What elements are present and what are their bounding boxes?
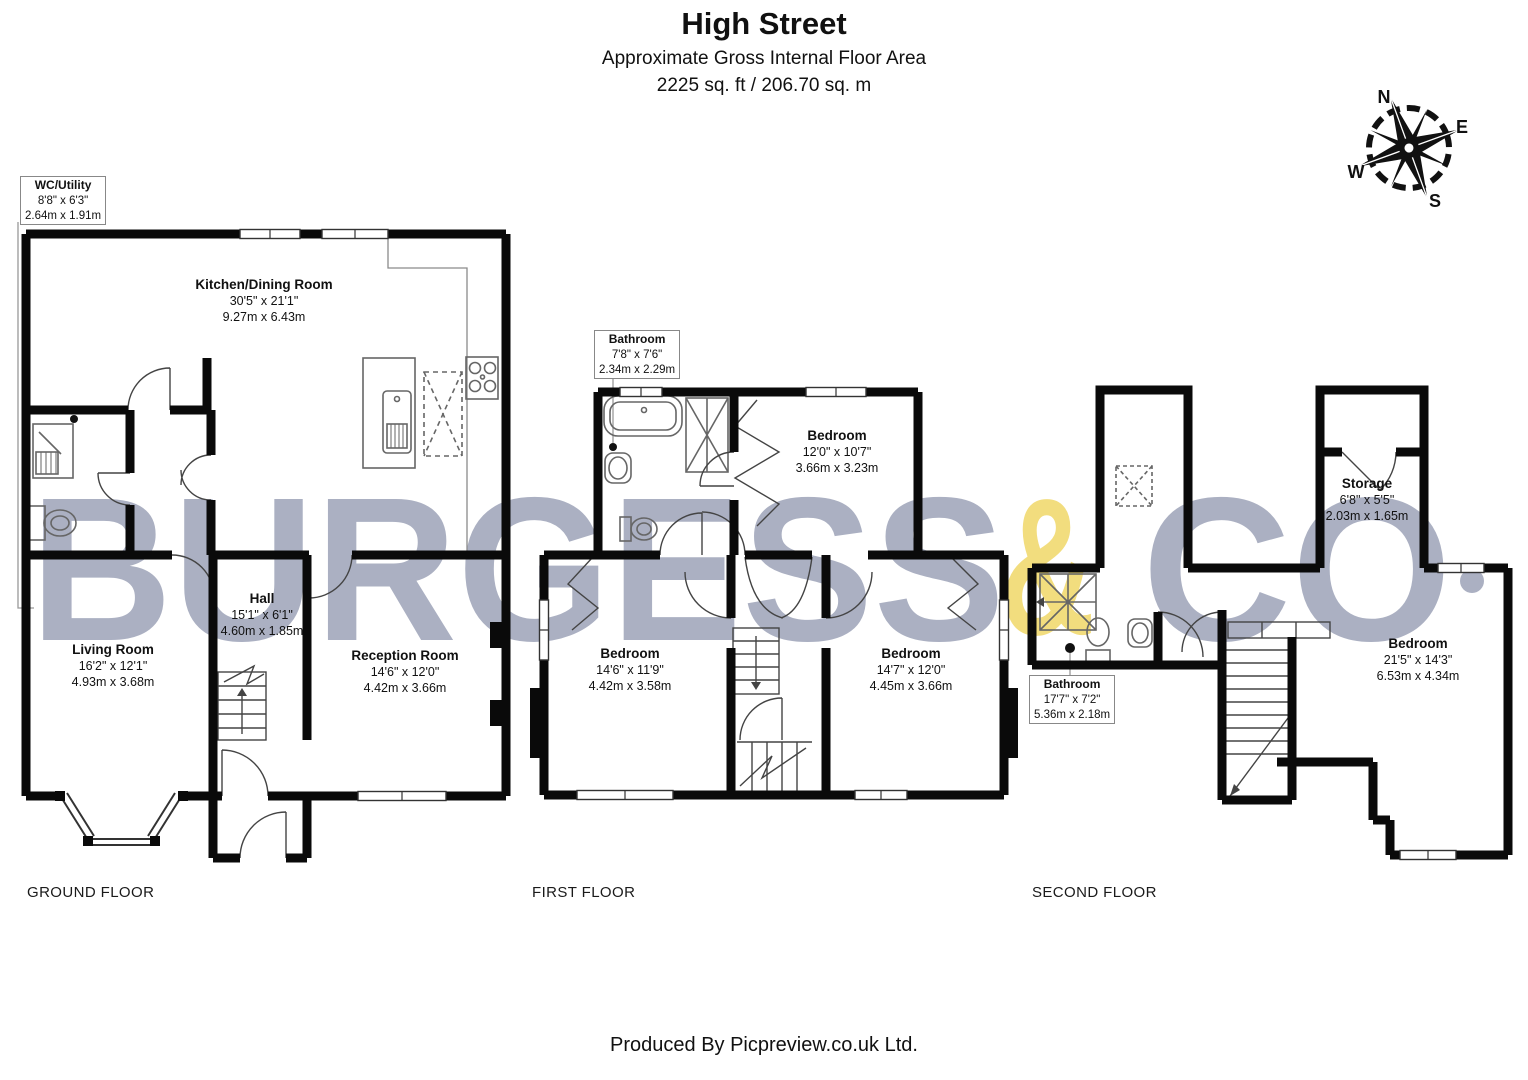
producer-credit: Produced By Picpreview.co.uk Ltd. xyxy=(0,1034,1528,1057)
room-label-ff-bathroom: Bathroom 7'8" x 7'6" 2.34m x 2.29m xyxy=(594,330,680,379)
caption-first-floor: FIRST FLOOR xyxy=(532,884,635,901)
room-label-sf-bathroom: Bathroom 17'7" x 7'2" 5.36m x 2.18m xyxy=(1029,675,1115,724)
room-label-ff-bedroom-left: Bedroom 14'6" x 11'9" 4.42m x 3.58m xyxy=(589,645,672,694)
room-label-sf-bedroom: Bedroom 21'5" x 14'3" 6.53m x 4.34m xyxy=(1377,635,1460,684)
room-label-sf-storage: Storage 6'8" x 5'5" 2.03m x 1.65m xyxy=(1326,475,1409,524)
compass-e-label: E xyxy=(1456,117,1468,137)
caption-ground-floor: GROUND FLOOR xyxy=(27,884,154,901)
floorplan-drawing: BURGESS & CO xyxy=(0,0,1528,1080)
room-label-ff-bedroom-top: Bedroom 12'0" x 10'7" 3.66m x 3.23m xyxy=(796,427,879,476)
room-label-ff-bedroom-right: Bedroom 14'7" x 12'0" 4.45m x 3.66m xyxy=(870,645,953,694)
room-label-living-room: Living Room 16'2" x 12'1" 4.93m x 3.68m xyxy=(72,641,155,690)
caption-second-floor: SECOND FLOOR xyxy=(1032,884,1157,901)
room-label-hall: Hall 15'1" x 6'1" 4.60m x 1.85m xyxy=(221,590,304,639)
room-label-kitchen-dining: Kitchen/Dining Room 30'5" x 21'1" 9.27m … xyxy=(195,276,332,325)
room-label-wc-utility: WC/Utility 8'8" x 6'3" 2.64m x 1.91m xyxy=(20,176,106,225)
compass-w-label: W xyxy=(1348,162,1365,182)
compass-n-label: N xyxy=(1378,87,1391,107)
compass-s-label: S xyxy=(1429,191,1441,211)
watermark-text-burgess: BURGESS xyxy=(30,455,1005,684)
compass-icon: N E S W xyxy=(1340,79,1478,217)
room-label-reception-room: Reception Room 14'6" x 12'0" 4.42m x 3.6… xyxy=(351,647,458,696)
floorplan-page: High Street Approximate Gross Internal F… xyxy=(0,0,1528,1080)
